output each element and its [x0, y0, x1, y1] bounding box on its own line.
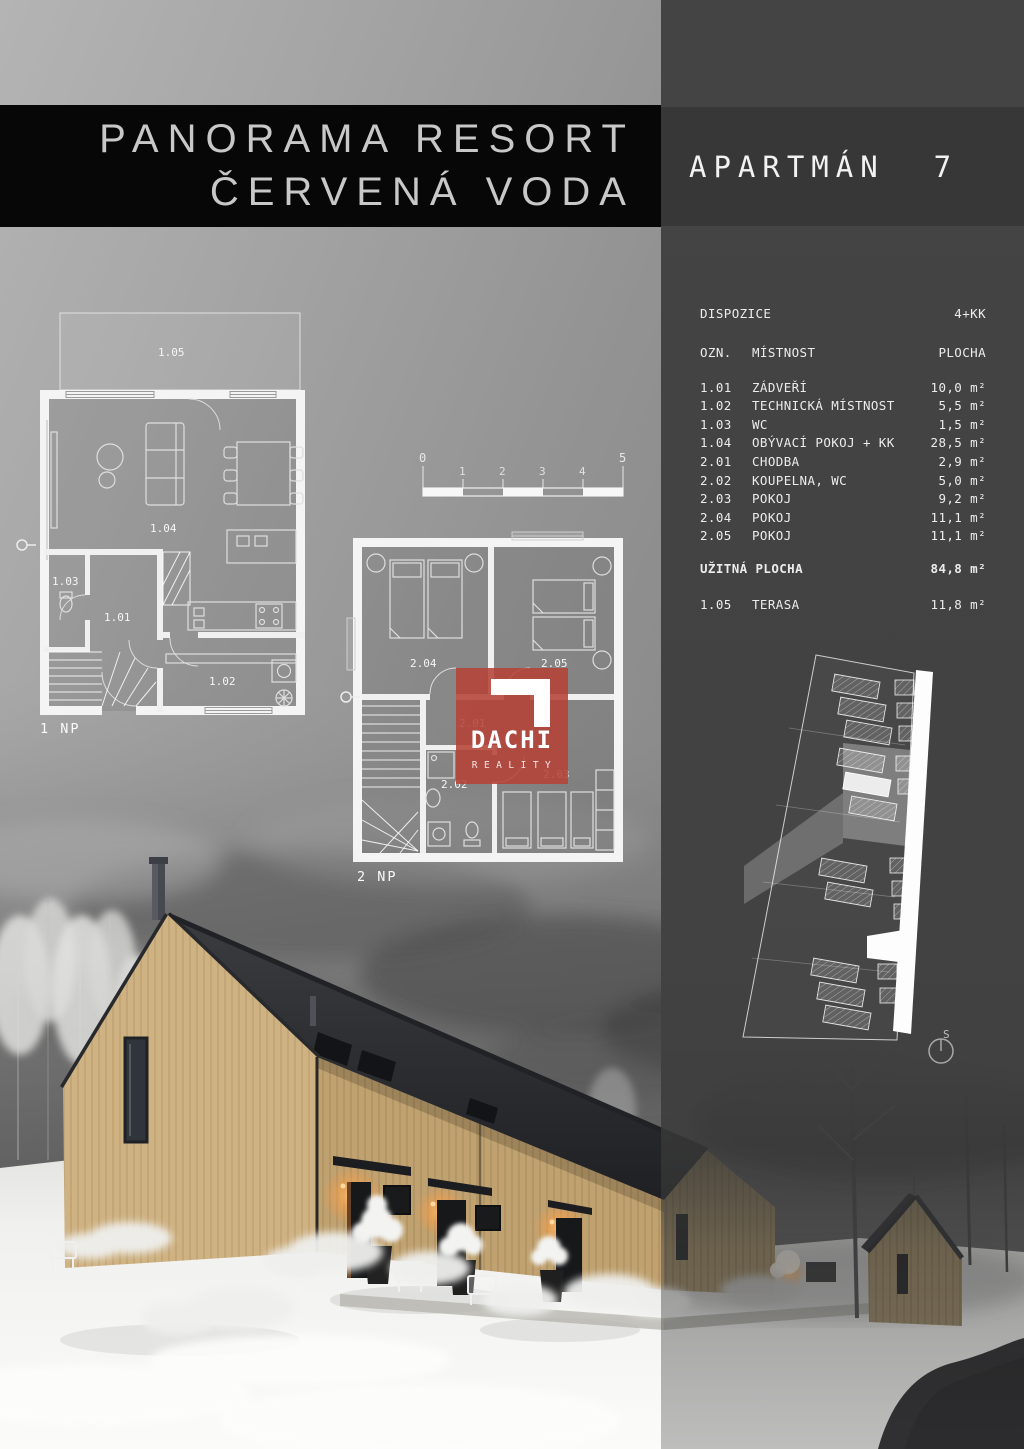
scale-tick-label: 1: [459, 465, 466, 478]
cell-ozn: 2.05: [700, 527, 752, 546]
door-hinge-icon: [17, 540, 36, 550]
window: [384, 1186, 410, 1214]
total-value: 84,8 m²: [931, 560, 986, 579]
cell-mistnost: KOUPELNA, WC: [752, 472, 938, 491]
cell-ozn: 1.01: [700, 379, 752, 398]
scale-tick-label: 5: [619, 451, 626, 465]
cell-mistnost: ZÁDVEŘÍ: [752, 379, 931, 398]
project-title-band: PANORAMA RESORT ČERVENÁ VODA: [0, 105, 661, 227]
cell-plocha: 11,1 m²: [931, 527, 986, 546]
room-label: 1.02: [209, 675, 236, 688]
total-row: UŽITNÁ PLOCHA 84,8 m²: [700, 560, 986, 579]
room-label: 1.03: [52, 575, 79, 588]
dispozice-value: 4+KK: [954, 306, 986, 321]
dispozice-label: DISPOZICE: [700, 306, 771, 321]
cell-mistnost: POKOJ: [752, 527, 931, 546]
table-header: OZN. MÍSTNOST PLOCHA: [700, 344, 986, 363]
terasa-row: 1.05 TERASA 11,8 m²: [700, 596, 986, 615]
table-row: 2.02 KOUPELNA, WC 5,0 m²: [700, 472, 986, 491]
scale-tick-label: 3: [539, 465, 546, 478]
room-label: 2.04: [410, 657, 437, 670]
wall-lamp: [341, 1184, 346, 1189]
room-label: 1.04: [150, 522, 177, 535]
cell-mistnost: OBÝVACÍ POKOJ + KK: [752, 434, 931, 453]
project-title-line2: ČERVENÁ VODA: [210, 166, 635, 219]
cell-mistnost: TECHNICKÁ MÍSTNOST: [752, 397, 938, 416]
compass-icon: S: [929, 1028, 953, 1063]
site-plan: S: [735, 648, 1013, 1076]
cell-ozn: 2.03: [700, 490, 752, 509]
scale-tick-label: 4: [579, 465, 586, 478]
wall-lamp: [431, 1202, 436, 1207]
header-ozn: OZN.: [700, 344, 752, 363]
apartment-title: APARTMÁN 7: [689, 150, 958, 184]
cell-mistnost: WC: [752, 416, 938, 435]
apartment-title-band: APARTMÁN 7: [661, 107, 1024, 226]
header-mistnost: MÍSTNOST: [752, 344, 938, 363]
scale-bar: 0 5 1 2 3 4: [419, 451, 626, 496]
cell-ozn: 1.02: [700, 397, 752, 416]
table-row: 2.05 POKOJ 11,1 m²: [700, 527, 986, 546]
compass-label: S: [943, 1028, 950, 1041]
scale-tick-label: 0: [419, 451, 426, 465]
table-row: 2.03 POKOJ 9,2 m²: [700, 490, 986, 509]
wall-lamp: [550, 1220, 555, 1225]
floor-caption: 1 NP: [40, 721, 81, 737]
table-row: 1.01 ZÁDVEŘÍ 10,0 m²: [700, 379, 986, 398]
cell-ozn: 2.04: [700, 509, 752, 528]
dachi-logo: DACHI REALITY: [456, 668, 568, 784]
cell-ozn: 1.03: [700, 416, 752, 435]
window: [476, 1206, 500, 1230]
dachi-logo-name: DACHI: [456, 726, 568, 754]
dispozice-row: DISPOZICE 4+KK: [700, 306, 986, 321]
cell-ozn: 1.05: [700, 596, 752, 615]
header-plocha: PLOCHA: [938, 344, 986, 363]
brochure-page: PANORAMA RESORT ČERVENÁ VODA APARTMÁN 7 …: [0, 0, 1024, 1449]
dachi-logo-mark: [534, 679, 550, 727]
cell-mistnost: TERASA: [752, 596, 931, 615]
cell-mistnost: CHODBA: [752, 453, 938, 472]
table-row: 1.04 OBÝVACÍ POKOJ + KK 28,5 m²: [700, 434, 986, 453]
total-label: UŽITNÁ PLOCHA: [700, 560, 931, 579]
cell-ozn: 2.02: [700, 472, 752, 491]
table-row: 2.04 POKOJ 11,1 m²: [700, 509, 986, 528]
floor-plan-1np: 1.05 1.04 1.03 1.01 1.02 1 NP: [14, 300, 314, 740]
cell-plocha: 2,9 m²: [938, 453, 986, 472]
scale-tick-label: 2: [499, 465, 506, 478]
cell-plocha: 11,8 m²: [931, 596, 986, 615]
cell-plocha: 5,5 m²: [938, 397, 986, 416]
cell-mistnost: POKOJ: [752, 509, 931, 528]
table-row: 1.03 WC 1,5 m²: [700, 416, 986, 435]
cell-plocha: 1,5 m²: [938, 416, 986, 435]
floor-caption: 2 NP: [357, 869, 398, 885]
table-row: 1.02 TECHNICKÁ MÍSTNOST 5,5 m²: [700, 397, 986, 416]
cell-mistnost: POKOJ: [752, 490, 938, 509]
cell-ozn: 2.01: [700, 453, 752, 472]
gable-window: [125, 1038, 147, 1142]
cell-plocha: 28,5 m²: [931, 434, 986, 453]
room-label: 1.01: [104, 611, 131, 624]
cell-plocha: 10,0 m²: [931, 379, 986, 398]
project-title-line1: PANORAMA RESORT: [99, 113, 635, 166]
cell-plocha: 5,0 m²: [938, 472, 986, 491]
room-table: DISPOZICE 4+KK OZN. MÍSTNOST PLOCHA 1.01…: [700, 306, 986, 614]
cell-ozn: 1.04: [700, 434, 752, 453]
dachi-logo-subtitle: REALITY: [461, 760, 568, 771]
table-row: 2.01 CHODBA 2,9 m²: [700, 453, 986, 472]
cell-plocha: 11,1 m²: [931, 509, 986, 528]
cell-plocha: 9,2 m²: [938, 490, 986, 509]
room-label: 1.05: [158, 346, 185, 359]
